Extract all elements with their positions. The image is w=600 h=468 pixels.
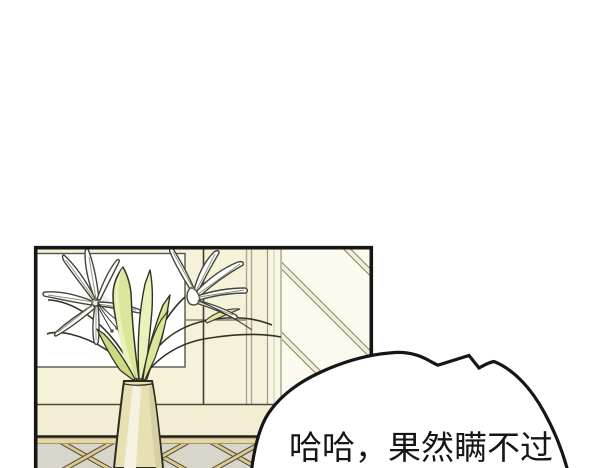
comic-page: 哈哈，果然瞒不过: [0, 0, 600, 468]
speech-bubble-text: 哈哈，果然瞒不过: [289, 430, 579, 466]
comic-panel-artwork: [0, 0, 600, 468]
